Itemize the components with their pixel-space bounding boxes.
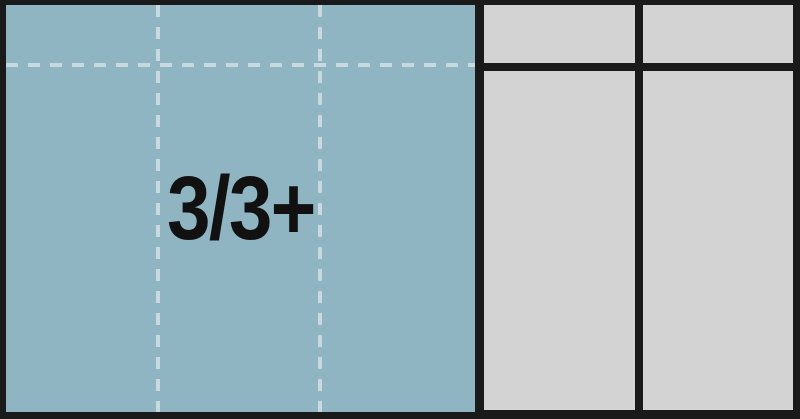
module-size-label: 3/3+: [167, 164, 315, 254]
compartment-right-top: [643, 5, 793, 63]
compartment-left-main: [484, 71, 635, 410]
compartment-left-top: [484, 5, 635, 63]
compartment-right-main: [643, 71, 793, 410]
dashed-divider-horizontal: [6, 63, 475, 67]
tray-layout-diagram: 3/3+: [0, 0, 800, 419]
module-panel: 3/3+: [6, 5, 475, 412]
